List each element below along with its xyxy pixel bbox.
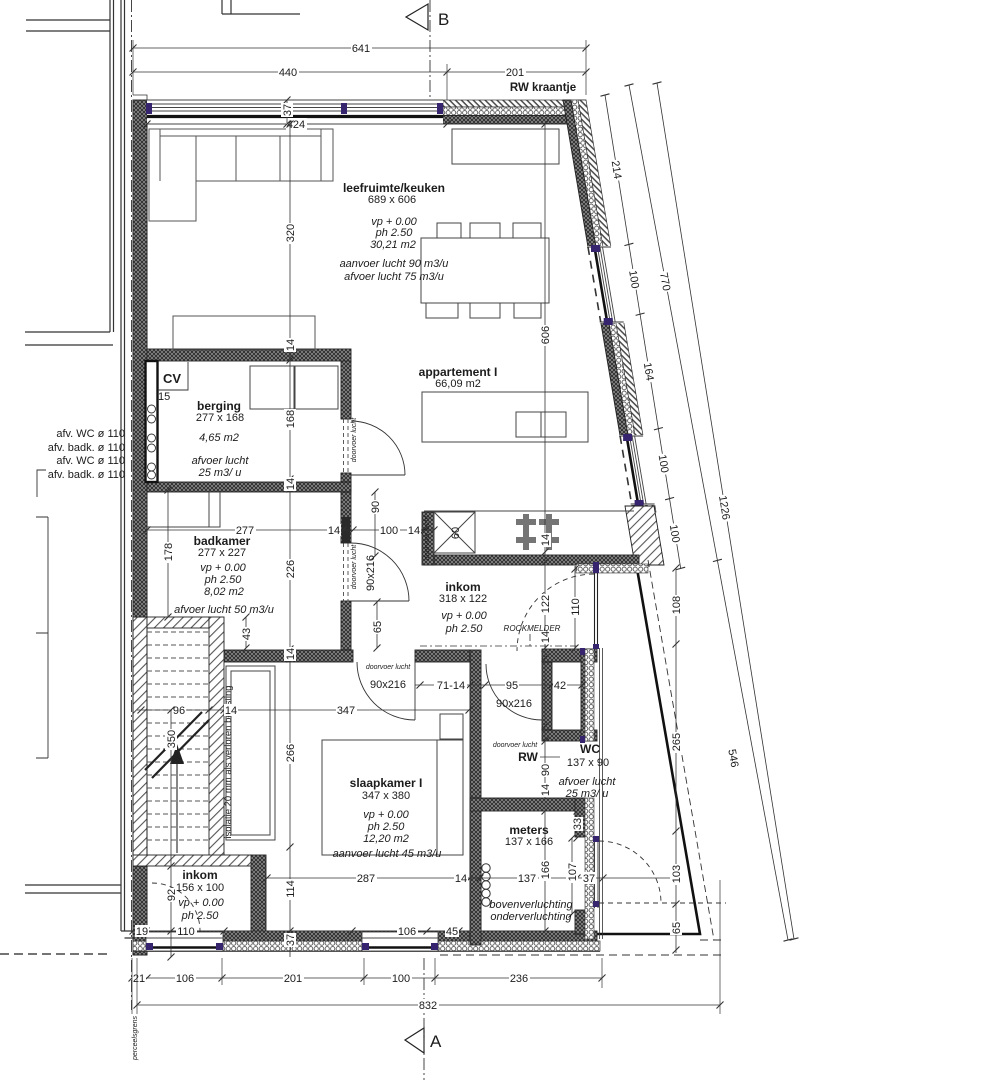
- svg-text:afvoer lucht 50 m3/u: afvoer lucht 50 m3/u: [174, 604, 274, 616]
- svg-text:meters: meters: [509, 823, 549, 837]
- svg-text:110: 110: [570, 598, 582, 616]
- svg-text:90: 90: [370, 501, 382, 513]
- svg-text:15: 15: [158, 391, 170, 403]
- svg-text:berging: berging: [197, 399, 241, 413]
- svg-text:afvoer lucht: afvoer lucht: [559, 776, 617, 788]
- svg-text:320: 320: [285, 224, 297, 242]
- svg-text:107: 107: [567, 863, 579, 881]
- svg-text:doorvoer lucht: doorvoer lucht: [351, 544, 358, 589]
- svg-text:166: 166: [540, 861, 552, 879]
- svg-text:347: 347: [337, 705, 355, 717]
- svg-text:277 x 168: 277 x 168: [196, 412, 244, 424]
- svg-text:137 x 90: 137 x 90: [567, 757, 609, 769]
- svg-text:ROOKMELDER: ROOKMELDER: [504, 624, 561, 633]
- svg-text:90x216: 90x216: [365, 555, 377, 591]
- svg-text:832: 832: [419, 1000, 437, 1012]
- svg-text:30,21 m2: 30,21 m2: [370, 239, 416, 251]
- svg-text:65: 65: [671, 922, 683, 934]
- svg-text:A: A: [430, 1032, 442, 1051]
- svg-text:90x216: 90x216: [496, 698, 532, 710]
- svg-text:156 x 100: 156 x 100: [176, 882, 224, 894]
- svg-text:37: 37: [282, 104, 294, 116]
- svg-text:226: 226: [285, 560, 297, 578]
- svg-text:B: B: [438, 10, 449, 29]
- svg-text:ph 2.50: ph 2.50: [204, 574, 243, 586]
- svg-text:14: 14: [285, 648, 297, 660]
- svg-text:287: 287: [357, 873, 375, 885]
- svg-text:689 x 606: 689 x 606: [368, 194, 416, 206]
- svg-text:14: 14: [540, 784, 552, 796]
- svg-text:inkom: inkom: [182, 868, 217, 882]
- svg-text:236: 236: [510, 973, 528, 985]
- svg-text:perceelsgrens: perceelsgrens: [132, 1016, 139, 1061]
- svg-text:vp + 0.00: vp + 0.00: [441, 610, 487, 622]
- svg-text:14: 14: [540, 534, 552, 546]
- svg-text:440: 440: [279, 67, 297, 79]
- svg-text:19: 19: [136, 926, 148, 938]
- svg-text:CV: CV: [163, 371, 181, 386]
- svg-text:ph 2.50: ph 2.50: [181, 910, 220, 922]
- svg-text:14: 14: [408, 525, 420, 537]
- svg-text:606: 606: [540, 326, 552, 344]
- svg-text:14: 14: [455, 873, 467, 885]
- svg-text:WC: WC: [580, 742, 600, 756]
- svg-text:8,02 m2: 8,02 m2: [204, 586, 244, 598]
- svg-text:doorvoer lucht: doorvoer lucht: [493, 742, 538, 749]
- svg-text:afv. WC ø 110: afv. WC ø 110: [56, 455, 125, 467]
- svg-text:100: 100: [392, 973, 410, 985]
- svg-text:afv. badk. ø 110: afv. badk. ø 110: [48, 442, 125, 454]
- svg-text:45: 45: [446, 926, 458, 938]
- svg-text:122: 122: [540, 595, 552, 613]
- svg-text:33: 33: [572, 818, 584, 830]
- svg-text:71-14: 71-14: [437, 680, 465, 692]
- svg-text:95: 95: [506, 680, 518, 692]
- svg-text:43: 43: [241, 628, 253, 640]
- svg-text:266: 266: [285, 744, 297, 762]
- svg-text:42: 42: [554, 680, 566, 692]
- svg-text:201: 201: [284, 973, 302, 985]
- svg-text:350: 350: [166, 730, 178, 748]
- svg-text:aanvoer lucht 45 m3/u: aanvoer lucht 45 m3/u: [333, 848, 442, 860]
- svg-text:21: 21: [133, 973, 145, 985]
- svg-text:318 x 122: 318 x 122: [439, 593, 487, 605]
- svg-text:137: 137: [518, 873, 536, 885]
- svg-text:178: 178: [163, 543, 175, 561]
- svg-text:doorvoer lucht: doorvoer lucht: [351, 417, 358, 462]
- svg-text:347 x 380: 347 x 380: [362, 790, 410, 802]
- svg-text:110: 110: [177, 926, 195, 938]
- svg-text:25 m3/ u: 25 m3/ u: [198, 467, 242, 479]
- svg-text:641: 641: [352, 43, 370, 55]
- svg-text:37: 37: [583, 873, 595, 885]
- svg-text:168: 168: [285, 410, 297, 428]
- svg-text:vp + 0.00: vp + 0.00: [200, 562, 246, 574]
- svg-text:badkamer: badkamer: [194, 534, 251, 548]
- svg-text:277 x 227: 277 x 227: [198, 547, 246, 559]
- svg-text:vp + 0.00: vp + 0.00: [363, 809, 409, 821]
- svg-text:60: 60: [450, 527, 462, 539]
- svg-text:137 x 166: 137 x 166: [505, 836, 553, 848]
- svg-text:14: 14: [328, 525, 340, 537]
- svg-text:bovenverluchting: bovenverluchting: [489, 899, 573, 911]
- svg-text:12,20 m2: 12,20 m2: [363, 833, 409, 845]
- svg-text:RW: RW: [518, 750, 538, 764]
- svg-text:106: 106: [398, 926, 416, 938]
- svg-text:4,65 m2: 4,65 m2: [199, 432, 239, 444]
- svg-text:doorvoer lucht: doorvoer lucht: [366, 664, 411, 671]
- svg-text:90: 90: [540, 764, 552, 776]
- svg-text:afvoer lucht 75 m3/u: afvoer lucht 75 m3/u: [344, 271, 444, 283]
- svg-text:afvoer lucht: afvoer lucht: [192, 455, 250, 467]
- svg-text:37: 37: [285, 934, 297, 946]
- svg-text:inkom: inkom: [445, 580, 480, 594]
- svg-text:14: 14: [285, 478, 297, 490]
- svg-text:aanvoer lucht 90 m3/u: aanvoer lucht 90 m3/u: [340, 258, 449, 270]
- svg-text:14: 14: [225, 705, 237, 717]
- svg-text:265: 265: [671, 733, 683, 751]
- svg-text:afv. WC ø 110: afv. WC ø 110: [56, 428, 125, 440]
- svg-text:onderverluchting: onderverluchting: [490, 911, 572, 923]
- svg-text:66,09 m2: 66,09 m2: [435, 378, 481, 390]
- svg-text:65: 65: [372, 621, 384, 633]
- svg-text:doorvoer lucht: doorvoer lucht: [424, 515, 431, 560]
- svg-text:114: 114: [285, 880, 297, 898]
- svg-text:100: 100: [380, 525, 398, 537]
- svg-text:14: 14: [285, 339, 297, 351]
- svg-text:90x216: 90x216: [370, 679, 406, 691]
- svg-text:108: 108: [671, 596, 683, 614]
- svg-text:ph 2.50: ph 2.50: [375, 227, 414, 239]
- svg-text:201: 201: [506, 67, 524, 79]
- svg-text:afv. badk. ø 110: afv. badk. ø 110: [48, 469, 125, 481]
- svg-text:vp + 0.00: vp + 0.00: [178, 897, 224, 909]
- svg-text:slaapkamer I: slaapkamer I: [350, 776, 423, 790]
- svg-text:appartement I: appartement I: [419, 365, 498, 379]
- svg-text:103: 103: [671, 865, 683, 883]
- svg-text:RW kraantje: RW kraantje: [510, 82, 576, 94]
- svg-text:leefruimte/keuken: leefruimte/keuken: [343, 181, 445, 195]
- svg-text:ph 2.50: ph 2.50: [367, 821, 406, 833]
- svg-text:25 m3/ u: 25 m3/ u: [565, 788, 609, 800]
- svg-text:ph 2.50: ph 2.50: [445, 623, 484, 635]
- svg-text:106: 106: [176, 973, 194, 985]
